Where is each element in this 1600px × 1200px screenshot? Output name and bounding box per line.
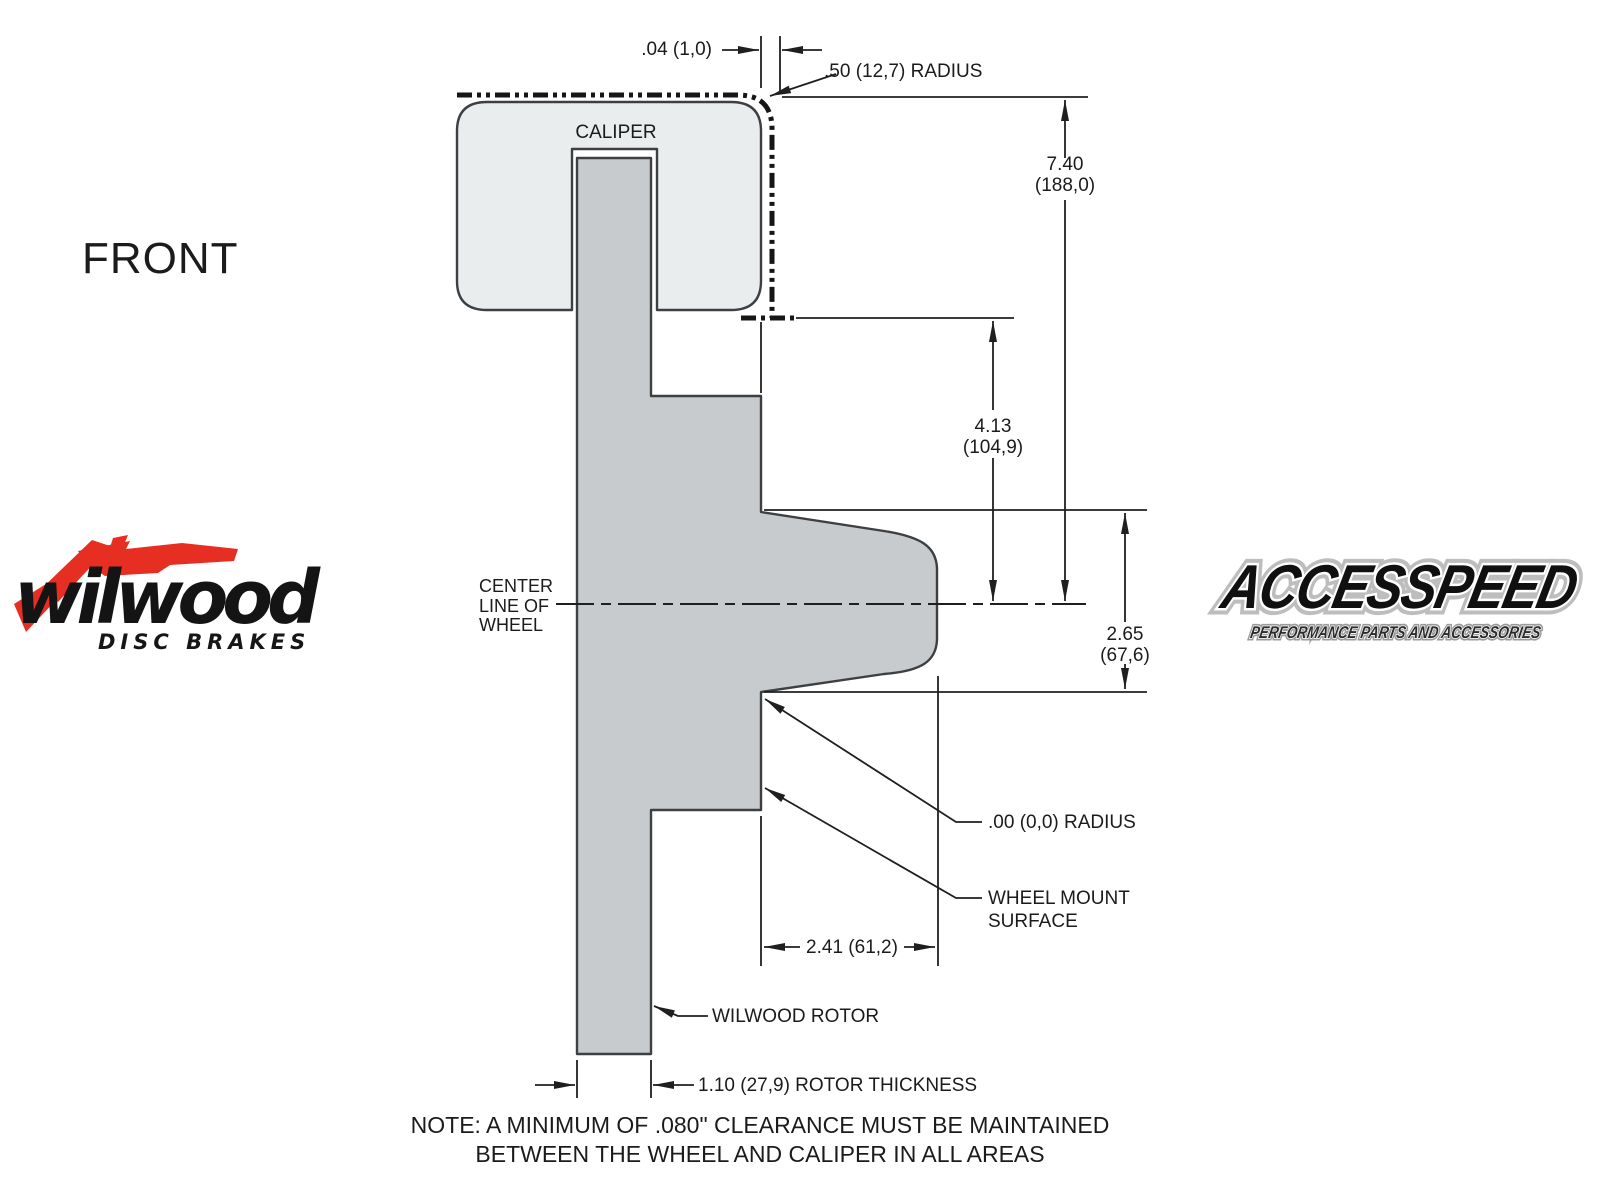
view-label: FRONT [82, 248, 239, 269]
dim-rotor-thickness: 1.10 (27,9) ROTOR THICKNESS [698, 1075, 977, 1096]
dim-zero-radius: .00 (0,0) RADIUS [988, 812, 1136, 833]
dim-caliper-height: 7.40 (188,0) [1003, 154, 1127, 196]
clearance-note: NOTE: A MINIMUM OF .080" CLEARANCE MUST … [410, 1111, 1110, 1169]
rotor-callout-label: WILWOOD ROTOR [712, 1006, 879, 1027]
caliper-label: CALIPER [556, 122, 676, 143]
brake-diagram-page: FRONT CALIPER .04 (1,0) .50 (12,7) RADIU… [0, 0, 1600, 1200]
accesspeed-tagline: PERFORMANCE PARTS AND ACCESSORIES [1249, 622, 1543, 642]
dim-clearance-gap: .04 (1,0) [606, 39, 712, 60]
centerline-label: CENTER LINE OF WHEEL [479, 577, 553, 636]
dim-caliper-lower-height: 4.13 (104,9) [931, 416, 1055, 458]
accesspeed-wordmark: ACCESSPEED [1214, 553, 1583, 622]
dim-mount-offset: 2.65 (67,6) [1063, 624, 1187, 666]
dim-hat-depth: 2.41 (61,2) [790, 937, 914, 958]
wilwood-logo: wilwood DISC BRAKES [10, 535, 330, 665]
accesspeed-logo: ACCESSPEED ACCESSPEED PERFORMANCE PARTS … [1185, 528, 1595, 653]
wilwood-wordmark: wilwood [14, 555, 321, 641]
dim-outer-radius: .50 (12,7) RADIUS [824, 61, 982, 82]
wilwood-tagline: DISC BRAKES [98, 630, 310, 654]
wheel-mount-surface-label: WHEEL MOUNT SURFACE [988, 887, 1130, 933]
